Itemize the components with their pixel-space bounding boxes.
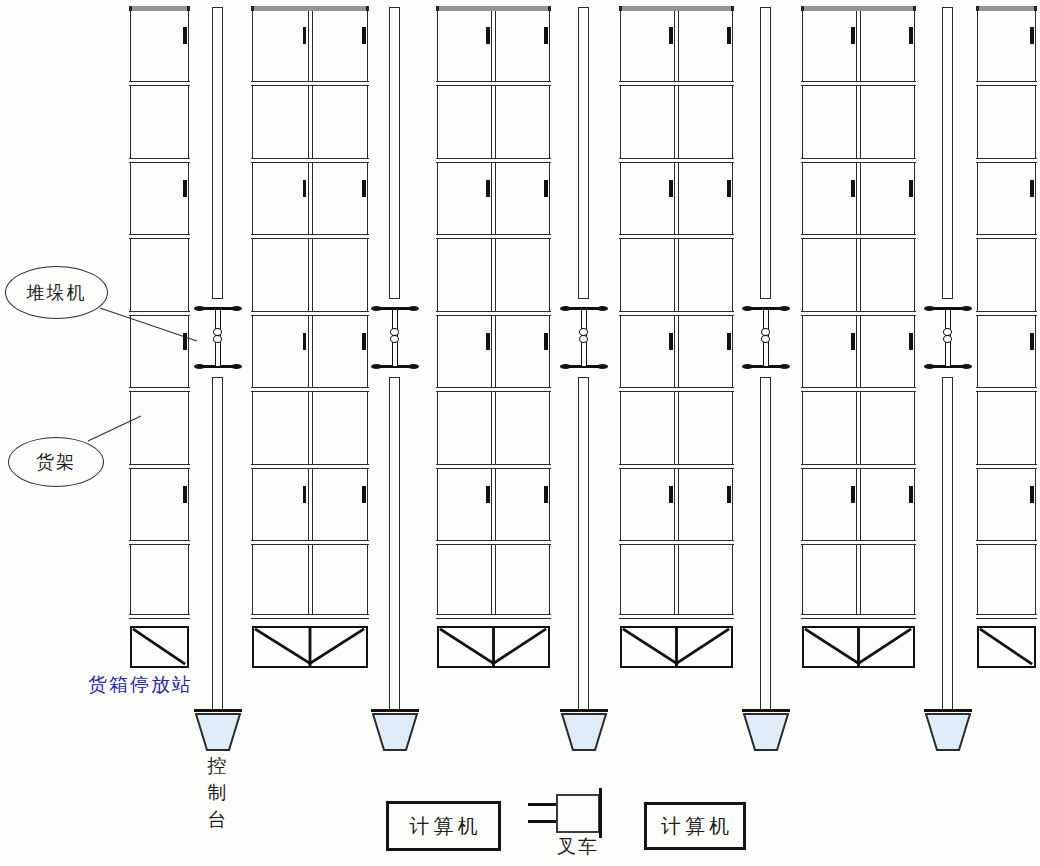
- shelf-beam: [619, 540, 734, 545]
- rack-top-cap: [619, 6, 734, 11]
- cell-marker: [486, 486, 490, 503]
- shelf-beam: [976, 387, 1037, 392]
- shelf-beam: [251, 387, 369, 392]
- shelf-beam: [801, 540, 916, 545]
- computer-box-left: 计算机: [386, 801, 501, 851]
- shelf-beam: [619, 234, 734, 239]
- shelf-beam: [619, 158, 734, 163]
- stacker-crane-wheel-icon: [924, 364, 935, 369]
- shelf-beam: [251, 464, 369, 469]
- shelf-beam: [976, 464, 1037, 469]
- stacker-crane-wheel-icon: [924, 306, 935, 311]
- rack-6: [977, 7, 1036, 619]
- shelf-beam: [976, 311, 1037, 316]
- shelf-beam: [129, 158, 190, 163]
- aisle-rail-upper-3: [578, 7, 589, 299]
- cell-marker: [486, 27, 490, 44]
- shelf-beam: [436, 540, 551, 545]
- stacker-crane-wheel-icon: [961, 306, 972, 311]
- cell-marker: [727, 27, 731, 44]
- console-trapezoid-icon: [371, 712, 419, 752]
- shelf-beam: [801, 614, 916, 619]
- shelf-beam: [436, 311, 551, 316]
- base-brace: [620, 626, 733, 668]
- cell-marker: [486, 333, 490, 350]
- shelf-beam: [251, 81, 369, 86]
- cell-marker: [909, 27, 913, 44]
- cell-marker: [851, 486, 855, 503]
- aisle-rail-lower-3: [578, 377, 589, 710]
- stacker-crane-wheel-icon: [231, 364, 242, 369]
- stacker-crane-wheel-icon: [779, 364, 790, 369]
- stacker-crane-wheel-icon: [194, 306, 205, 311]
- cell-marker: [362, 27, 366, 44]
- rack-top-cap: [801, 6, 916, 11]
- rack-callout: 货架: [8, 437, 104, 487]
- brace-diagonal-icon: [254, 628, 366, 666]
- shelf-beam: [251, 311, 369, 316]
- computer-right-label: 计算机: [657, 813, 733, 840]
- console-label-char-2: 制: [208, 779, 227, 806]
- brace-diagonal-icon: [132, 628, 187, 666]
- shelf-beam: [619, 614, 734, 619]
- control-console-2: [371, 712, 419, 752]
- cell-marker: [486, 180, 490, 197]
- base-brace: [437, 626, 550, 668]
- cell-marker: [727, 180, 731, 197]
- cell-marker: [669, 486, 673, 503]
- stacker-crane-wheel-icon: [560, 306, 571, 311]
- stacker-crane-carriage-icon: [943, 335, 952, 343]
- stacker-crane-wheel-icon: [371, 364, 382, 369]
- aisle-rail-lower-4: [760, 377, 771, 710]
- cell-marker: [909, 180, 913, 197]
- cell-marker: [544, 180, 548, 197]
- console-trapezoid-icon: [742, 712, 790, 752]
- console-trapezoid-icon: [560, 712, 608, 752]
- cell-marker: [362, 333, 366, 350]
- cell-marker: [669, 180, 673, 197]
- stacker-crane-wheel-icon: [961, 364, 972, 369]
- rack-top-cap: [976, 6, 1037, 11]
- shelf-beam: [129, 464, 190, 469]
- computer-box-right: 计算机: [644, 802, 746, 850]
- stacker-crane-wheel-icon: [560, 364, 571, 369]
- aisle-rail-upper-1: [212, 7, 223, 299]
- stacker-crane-wheel-icon: [408, 306, 419, 311]
- console-trapezoid-icon: [924, 712, 972, 752]
- stacker-crane-carriage-icon: [213, 335, 222, 343]
- console-label: 控 制 台: [200, 752, 234, 833]
- base-brace: [252, 626, 368, 668]
- shelf-beam: [801, 81, 916, 86]
- stacker-crane-carriage-icon: [579, 335, 588, 343]
- cell-marker: [1030, 27, 1034, 44]
- cell-marker: [183, 486, 187, 503]
- cell-marker: [544, 333, 548, 350]
- stacker-crane-label: 堆垛机: [27, 281, 87, 305]
- cell-marker: [851, 180, 855, 197]
- cell-marker: [544, 27, 548, 44]
- aisle-rail-lower-1: [212, 377, 223, 710]
- cell-marker: [362, 180, 366, 197]
- console-label-char-3: 台: [208, 806, 227, 833]
- stacker-crane-wheel-icon: [779, 306, 790, 311]
- forklift-mast-icon: [599, 788, 602, 838]
- control-console-4: [742, 712, 790, 752]
- shelf-beam: [801, 311, 916, 316]
- cell-marker: [362, 486, 366, 503]
- shelf-beam: [129, 311, 190, 316]
- cell-marker: [909, 486, 913, 503]
- shelf-beam: [976, 234, 1037, 239]
- cell-marker: [303, 486, 307, 503]
- stacker-crane-wheel-icon: [408, 364, 419, 369]
- shelf-beam: [251, 158, 369, 163]
- cell-marker: [851, 27, 855, 44]
- cell-marker: [909, 333, 913, 350]
- aisle-rail-upper-2: [389, 7, 400, 299]
- rack-top-cap: [129, 6, 190, 11]
- shelf-beam: [129, 234, 190, 239]
- brace-diagonal-icon: [979, 628, 1034, 666]
- base-brace: [802, 626, 915, 668]
- shelf-beam: [129, 81, 190, 86]
- shelf-beam: [619, 81, 734, 86]
- brace-diagonal-icon: [622, 628, 731, 666]
- cell-marker: [669, 333, 673, 350]
- rack-2: [252, 7, 368, 619]
- stacker-crane-carriage-icon: [390, 335, 399, 343]
- container-station-label: 货箱停放站: [88, 672, 193, 698]
- rack-3: [437, 7, 550, 619]
- stacker-crane-wheel-icon: [597, 364, 608, 369]
- shelf-beam: [251, 540, 369, 545]
- stacker-crane-wheel-icon: [194, 364, 205, 369]
- stacker-crane-wheel-icon: [742, 306, 753, 311]
- cell-marker: [1030, 180, 1034, 197]
- stacker-crane-wheel-icon: [231, 306, 242, 311]
- shelf-beam: [801, 464, 916, 469]
- warehouse-diagram: 堆垛机 货架 货箱停放站 控 制 台 计算机 计算机 叉车: [0, 0, 1040, 866]
- cell-marker: [303, 333, 307, 350]
- shelf-beam: [619, 311, 734, 316]
- shelf-beam: [801, 158, 916, 163]
- rack-label: 货架: [36, 450, 76, 474]
- cell-marker: [303, 27, 307, 44]
- control-console-1: [194, 712, 242, 752]
- shelf-beam: [251, 614, 369, 619]
- shelf-beam: [619, 464, 734, 469]
- control-console-3: [560, 712, 608, 752]
- aisle-rail-upper-4: [760, 7, 771, 299]
- rack-4: [620, 7, 733, 619]
- cell-marker: [183, 27, 187, 44]
- stacker-crane-callout: 堆垛机: [5, 266, 108, 319]
- brace-diagonal-icon: [804, 628, 913, 666]
- console-trapezoid-icon: [194, 712, 242, 752]
- cell-marker: [303, 180, 307, 197]
- cell-marker: [1030, 486, 1034, 503]
- shelf-beam: [976, 614, 1037, 619]
- shelf-beam: [129, 540, 190, 545]
- console-label-char-1: 控: [208, 752, 227, 779]
- shelf-beam: [619, 387, 734, 392]
- forklift-body-icon: [556, 794, 600, 833]
- cell-marker: [669, 27, 673, 44]
- cell-marker: [1030, 333, 1034, 350]
- shelf-beam: [251, 234, 369, 239]
- control-console-5: [924, 712, 972, 752]
- cell-marker: [544, 486, 548, 503]
- shelf-beam: [801, 387, 916, 392]
- rack-1: [130, 7, 189, 619]
- rack-top-cap: [436, 6, 551, 11]
- aisle-rail-lower-2: [389, 377, 400, 710]
- cell-marker: [851, 333, 855, 350]
- rack-top-cap: [251, 6, 369, 11]
- shelf-beam: [801, 234, 916, 239]
- shelf-beam: [436, 464, 551, 469]
- shelf-beam: [436, 387, 551, 392]
- base-brace: [130, 626, 189, 668]
- cell-marker: [183, 180, 187, 197]
- shelf-beam: [129, 614, 190, 619]
- forklift-label: 叉车: [545, 834, 611, 860]
- shelf-beam: [976, 81, 1037, 86]
- computer-left-label: 计算机: [406, 813, 482, 840]
- cell-marker: [727, 333, 731, 350]
- brace-diagonal-icon: [439, 628, 548, 666]
- cell-marker: [183, 333, 187, 350]
- rack-5: [802, 7, 915, 619]
- base-brace: [977, 626, 1036, 668]
- shelf-beam: [436, 614, 551, 619]
- stacker-crane-carriage-icon: [761, 335, 770, 343]
- shelf-beam: [436, 81, 551, 86]
- stacker-crane-wheel-icon: [371, 306, 382, 311]
- aisle-rail-lower-5: [942, 377, 953, 710]
- shelf-beam: [436, 158, 551, 163]
- shelf-beam: [436, 234, 551, 239]
- stacker-crane-wheel-icon: [597, 306, 608, 311]
- cell-marker: [727, 486, 731, 503]
- shelf-beam: [976, 540, 1037, 545]
- aisle-rail-upper-5: [942, 7, 953, 299]
- shelf-beam: [976, 158, 1037, 163]
- shelf-beam: [129, 387, 190, 392]
- stacker-crane-wheel-icon: [742, 364, 753, 369]
